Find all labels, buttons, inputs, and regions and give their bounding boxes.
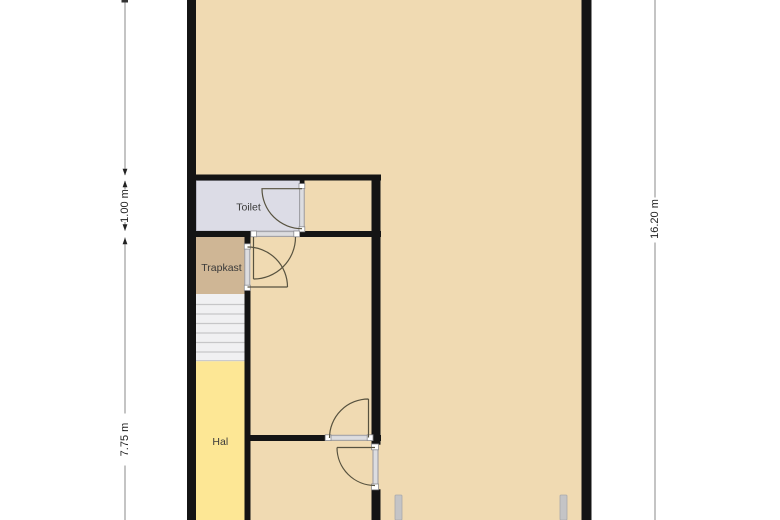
svg-text:Hal: Hal: [212, 436, 228, 448]
svg-text:1.00 m: 1.00 m: [119, 189, 131, 223]
svg-text:Toilet: Toilet: [236, 202, 261, 214]
svg-text:7.75 m: 7.75 m: [119, 423, 131, 457]
svg-text:16.20 m: 16.20 m: [649, 199, 661, 239]
svg-text:Trapkast: Trapkast: [201, 262, 242, 274]
